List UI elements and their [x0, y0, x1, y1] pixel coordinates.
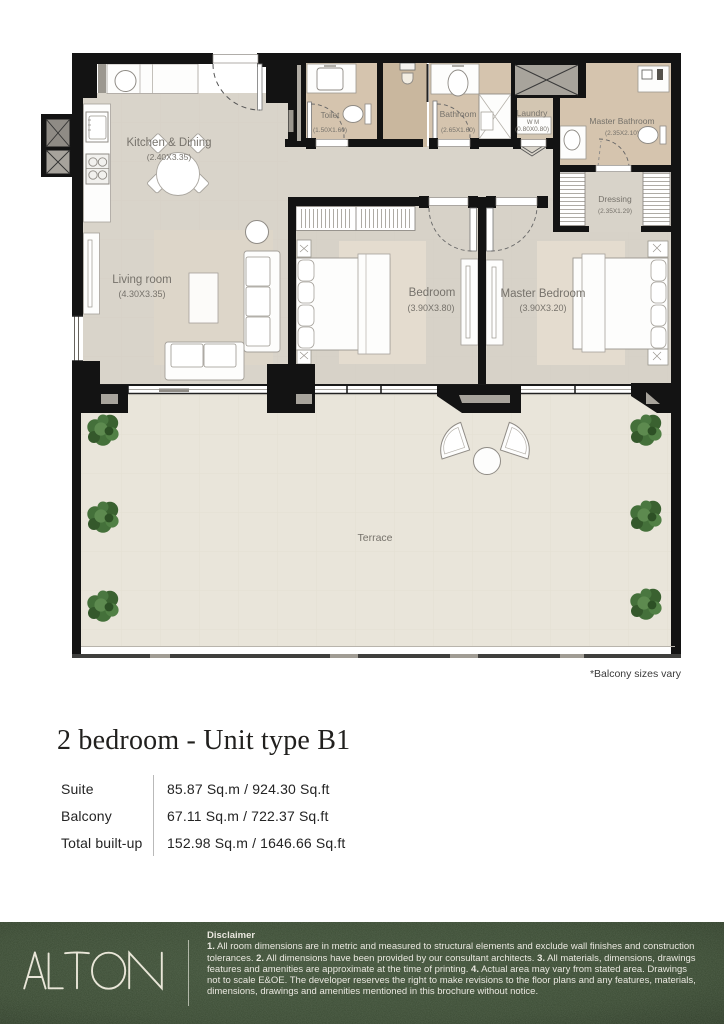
svg-text:Toilet: Toilet — [321, 111, 340, 120]
svg-text:(3.90X3.20): (3.90X3.20) — [519, 303, 566, 313]
svg-text:(0.80X0.80): (0.80X0.80) — [515, 126, 549, 133]
svg-text:(2.65X1.60): (2.65X1.60) — [441, 127, 475, 134]
svg-text:Dressing: Dressing — [598, 194, 632, 204]
svg-text:(3.90X3.80): (3.90X3.80) — [407, 303, 454, 313]
svg-text:(2.40X3.35): (2.40X3.35) — [147, 152, 192, 162]
svg-text:Laundry: Laundry — [517, 108, 548, 118]
svg-text:Kitchen & Dining: Kitchen & Dining — [126, 137, 211, 149]
svg-text:Master Bedroom: Master Bedroom — [500, 288, 585, 300]
svg-text:Bathroom: Bathroom — [440, 109, 477, 119]
svg-text:Bedroom: Bedroom — [409, 287, 456, 299]
svg-text:Master Bathroom: Master Bathroom — [589, 116, 654, 126]
svg-text:*Balcony sizes vary: *Balcony sizes vary — [590, 668, 682, 680]
svg-text:Living room: Living room — [112, 274, 171, 286]
svg-text:(1.50X1.60): (1.50X1.60) — [313, 127, 347, 134]
svg-text:Terrace: Terrace — [357, 532, 392, 544]
svg-text:(2.35X2.10): (2.35X2.10) — [605, 130, 639, 137]
svg-text:(4.30X3.35): (4.30X3.35) — [118, 289, 165, 299]
svg-text:(2.35X1.29): (2.35X1.29) — [598, 208, 632, 215]
